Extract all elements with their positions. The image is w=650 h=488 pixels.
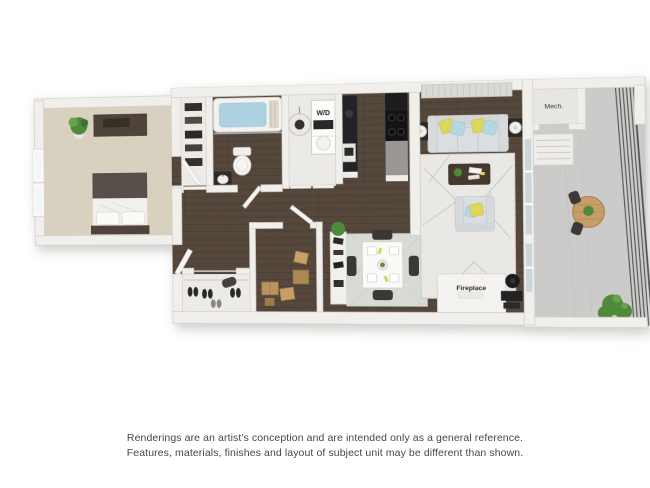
- cardboard-box: [294, 251, 309, 264]
- dining-chair: [346, 256, 356, 276]
- dining-chair: [373, 290, 393, 300]
- living-room-window-blinds: [421, 83, 512, 98]
- floor-plan-page: W/D Mech. Fireplace Renderings are an ar…: [0, 0, 650, 488]
- bed: [91, 172, 150, 234]
- ac-louver-panel: [533, 134, 573, 165]
- bathtub: [213, 97, 281, 134]
- bookshelf: [330, 222, 347, 304]
- washer-dryer-label: W/D: [316, 110, 330, 117]
- headboard: [91, 225, 150, 234]
- shelf-plant: [331, 222, 345, 236]
- sofa: [428, 114, 509, 152]
- utility-bifold-door: [313, 185, 334, 188]
- sliding-glass-door: [524, 139, 533, 293]
- fireplace: [437, 274, 505, 313]
- kitchen-counter-left: [341, 95, 358, 177]
- bed-pillow: [122, 212, 145, 225]
- bed-pillow: [96, 212, 119, 225]
- fireplace-label: Fireplace: [456, 285, 486, 292]
- armchair: [455, 196, 494, 231]
- floor-plan-rendering: W/D Mech. Fireplace: [32, 76, 650, 336]
- living-room: [414, 114, 525, 313]
- dining-chair: [372, 230, 392, 240]
- mech-label: Mech.: [544, 103, 563, 111]
- closet-bifold-door: [183, 186, 206, 189]
- coffee-table: [449, 164, 490, 185]
- end-table-right: [508, 118, 523, 137]
- cardboard-box: [265, 298, 275, 306]
- bedroom: [43, 106, 172, 236]
- disclaimer: Renderings are an artist's conception an…: [0, 431, 650, 461]
- stove: [385, 110, 407, 141]
- utility-closet: [288, 94, 335, 187]
- kitchen-counter-right: [385, 86, 408, 181]
- sofa-pillow-blue: [482, 120, 498, 136]
- toilet: [233, 147, 251, 175]
- dresser: [94, 114, 147, 136]
- entry-closet: [182, 274, 250, 312]
- disclaimer-line-2: Features, materials, finishes and layout…: [0, 446, 650, 461]
- dining-chair: [409, 256, 419, 276]
- utility-bifold-door: [290, 185, 311, 188]
- disclaimer-line-1: Renderings are an artist's conception an…: [0, 431, 650, 446]
- bedroom-window: [33, 149, 45, 217]
- washer-dryer-unit: [311, 100, 335, 154]
- table-plant: [583, 206, 594, 216]
- cardboard-box: [280, 287, 295, 301]
- dining-table: [362, 242, 403, 288]
- sofa-pillow-blue: [450, 121, 466, 136]
- cardboard-box: [293, 270, 309, 284]
